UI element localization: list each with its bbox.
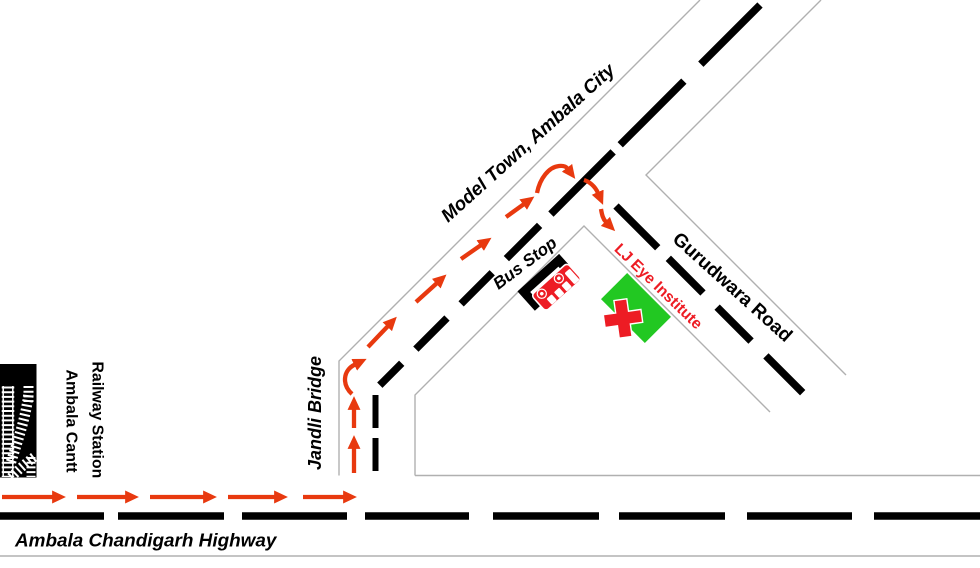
svg-text:Railway Station: Railway Station (89, 362, 106, 479)
svg-text:Ambala Chandigarh Highway: Ambala Chandigarh Highway (14, 531, 278, 552)
svg-text:Jandli Bridge: Jandli Bridge (305, 356, 325, 470)
svg-text:Ambala Cantt: Ambala Cantt (63, 370, 80, 474)
